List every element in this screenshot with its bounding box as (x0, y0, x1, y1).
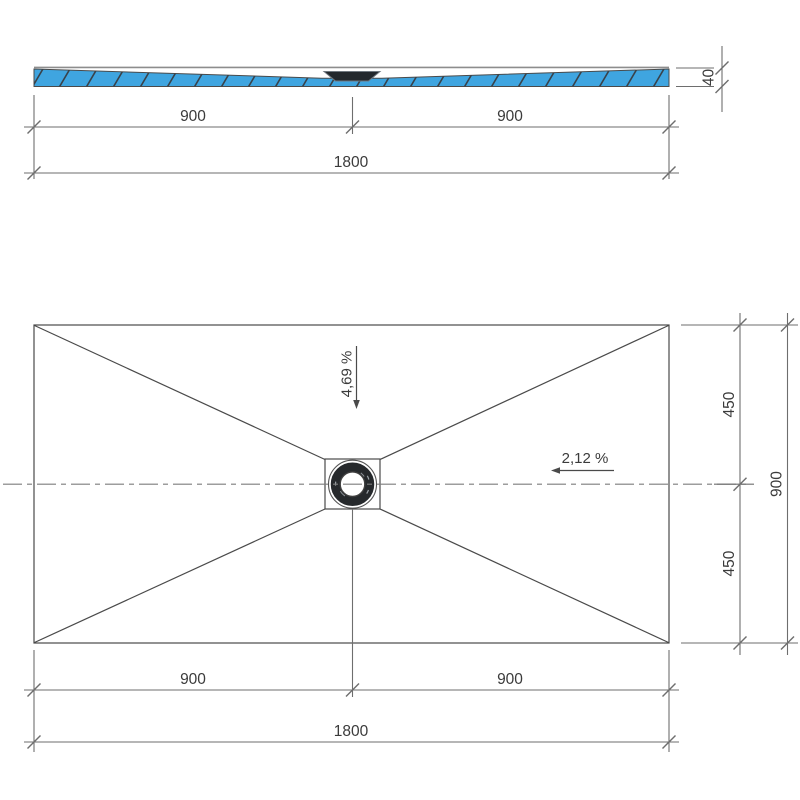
plan-dim-right-label: 900 (497, 671, 523, 688)
slope-vertical-annotation: 4,69 % (339, 346, 360, 409)
section-dimensions: 900 900 1800 (24, 95, 679, 180)
technical-drawing-shower-tray: 40 900 900 1800 (0, 0, 800, 800)
plan-dim-side-total-label: 900 (769, 471, 786, 497)
plan-bottom-dimensions: 900 900 1800 (24, 650, 679, 752)
dim-thickness: 40 (676, 46, 729, 112)
slope-vertical-label: 4,69 % (339, 351, 356, 398)
section-dim-right-label: 900 (497, 108, 523, 125)
drawing-canvas: 40 900 900 1800 (0, 0, 800, 800)
section-thickness-label: 40 (701, 69, 718, 87)
plan-dim-top-half-label: 450 (721, 391, 738, 417)
section-dim-total-label: 1800 (334, 154, 369, 171)
plan-dim-total-label: 1800 (334, 723, 369, 740)
plan-view: 4,69 % 2,12 % 450 450 900 (3, 313, 798, 752)
section-dim-left-label: 900 (180, 108, 206, 125)
slope-horizontal-label: 2,12 % (562, 450, 609, 467)
plan-dim-left-label: 900 (180, 671, 206, 688)
section-view: 40 900 900 1800 (24, 46, 729, 180)
plan-dim-bottom-half-label: 450 (721, 550, 738, 576)
slope-horizontal-annotation: 2,12 % (551, 450, 614, 474)
